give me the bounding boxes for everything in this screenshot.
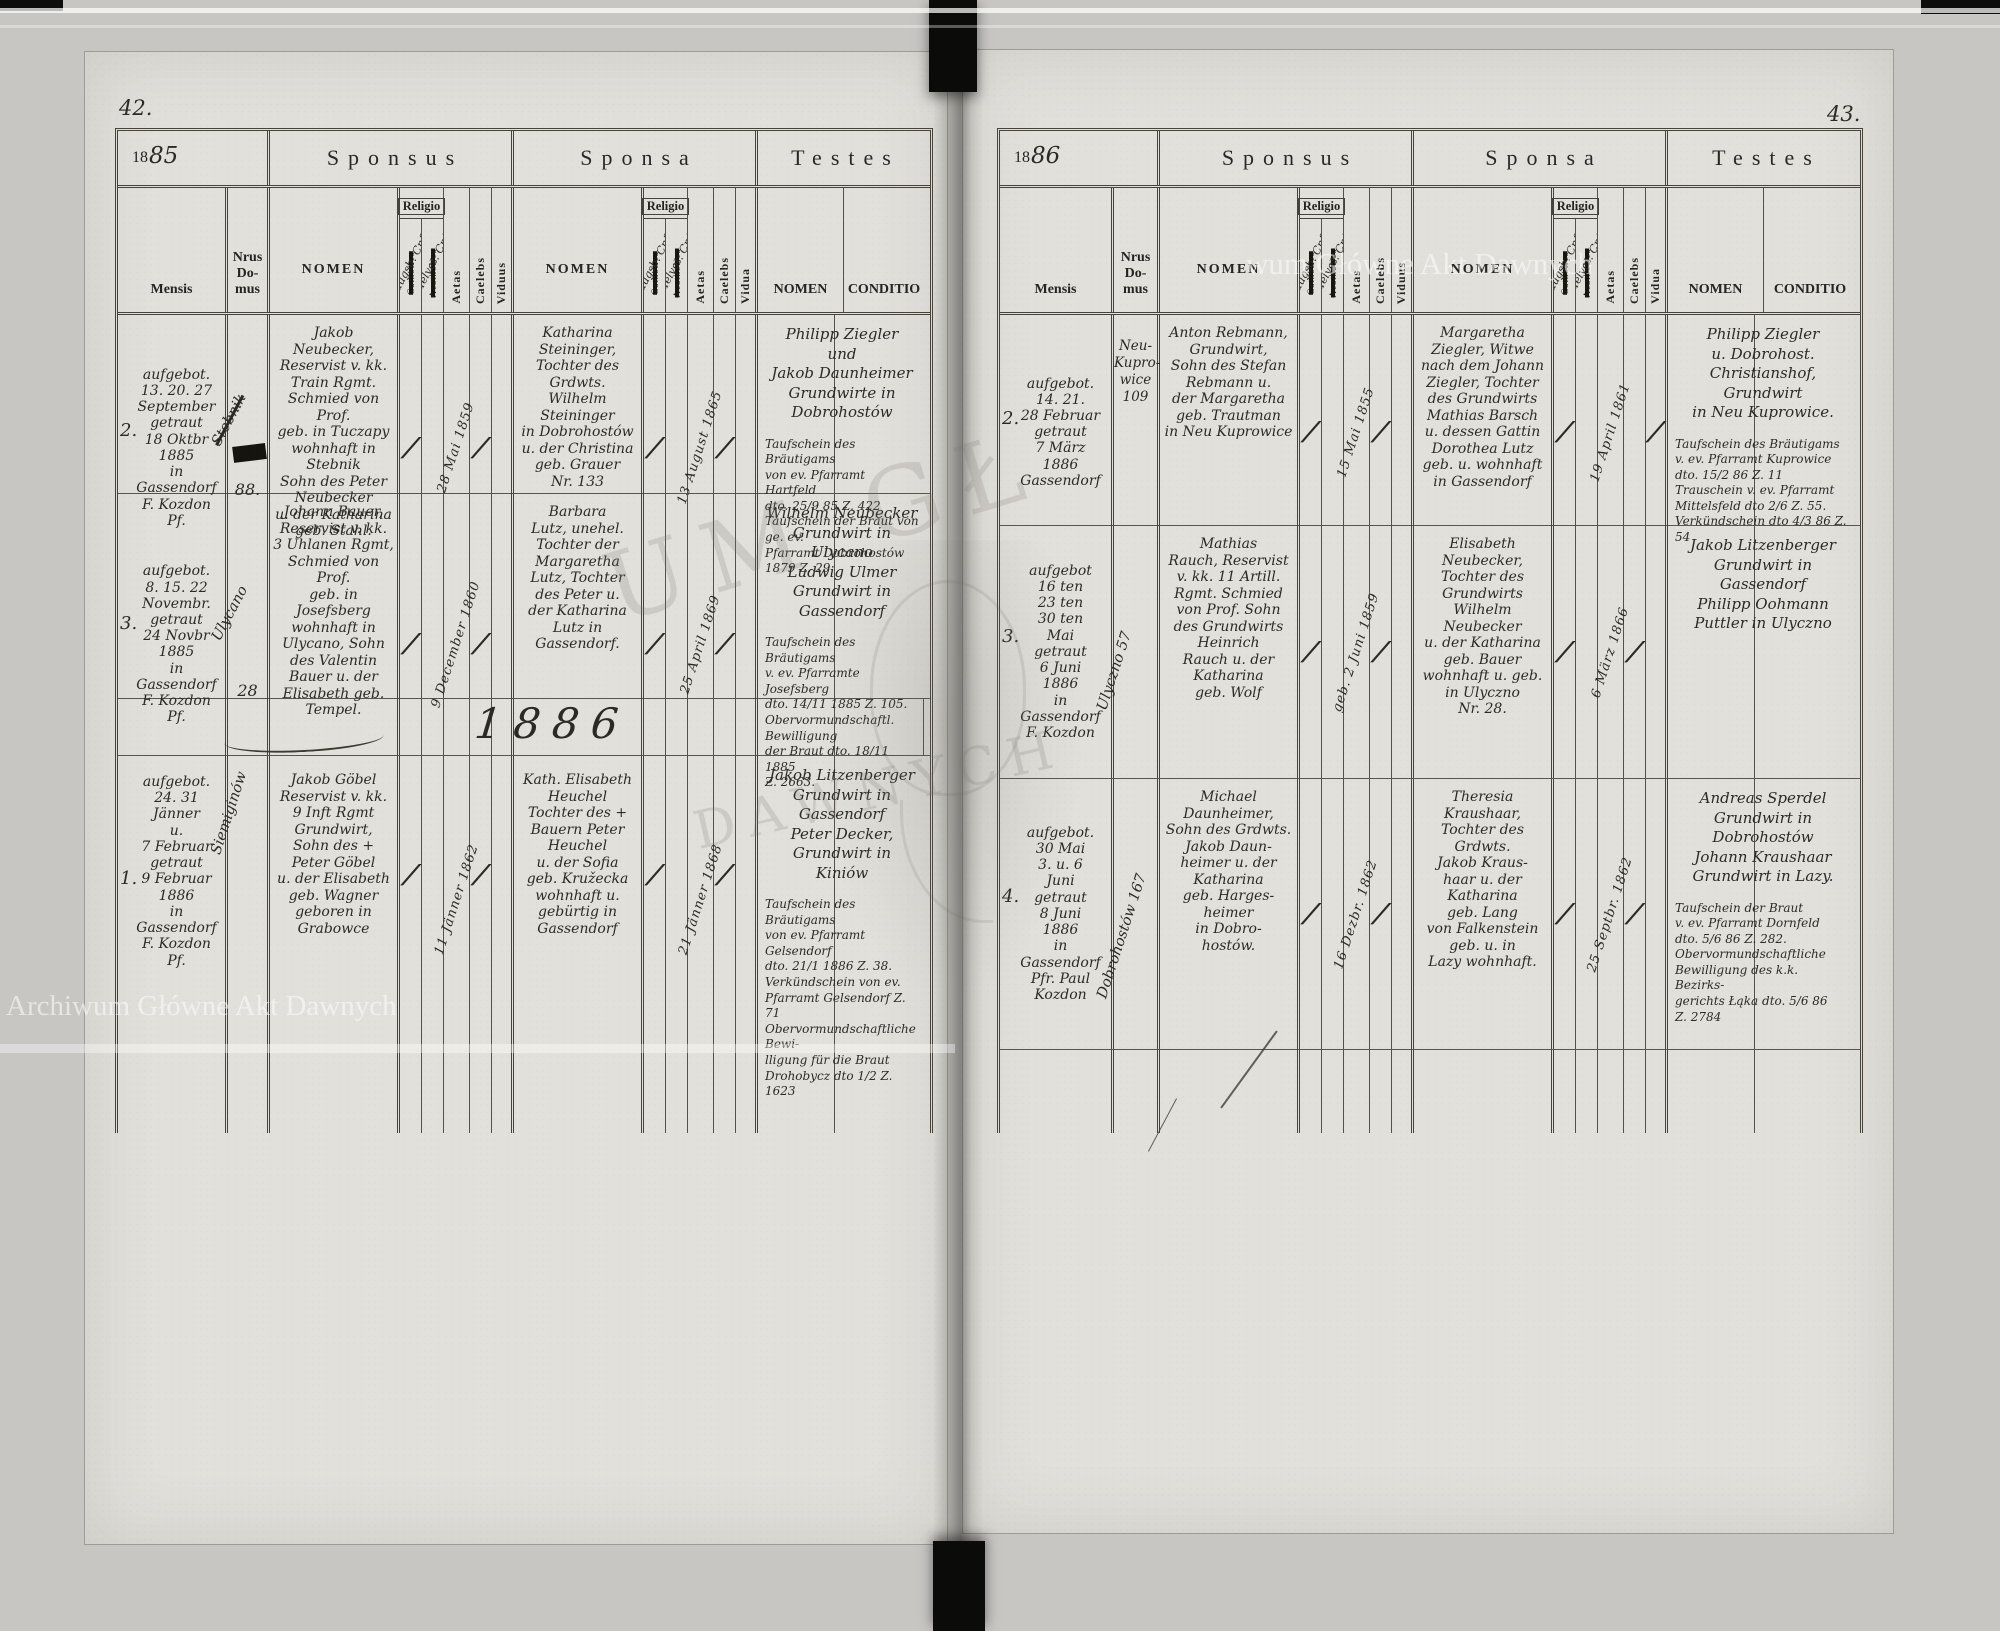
cell-sponsus-nomen: Mathias Rauch, Reservist v. kk. 11 Artil…	[1160, 526, 1300, 778]
entry-number: 3.	[1002, 627, 1019, 648]
col-caelebs-sponsus: Caelebs	[470, 188, 492, 312]
caelebs-mark: /	[714, 629, 734, 659]
cell-sponsa-caelebs: /	[714, 756, 736, 1133]
cell-empty	[736, 699, 758, 755]
page-number-right: 43.	[1827, 102, 1860, 126]
religio-mark: /	[1300, 637, 1320, 667]
cell-empty	[714, 699, 736, 755]
religio-catholica-col: Catholica augsb. Cnf.	[644, 219, 666, 312]
cell-empty	[1322, 1050, 1344, 1133]
col-viduus-sponsus: Viduus	[492, 188, 514, 312]
testes-names: Jakob Litzenberger Grundwirt in Gassendo…	[1675, 536, 1851, 634]
caelebs-mark: /	[1370, 417, 1390, 447]
page-number-left: 42.	[119, 96, 152, 120]
religio-subcolumns: Catholica augsb. Cnf. Acatholica Helvet.…	[400, 218, 443, 312]
religio-mark: /	[1554, 637, 1574, 667]
religio-subcolumns: Catholica augsb. Cnf. Acatholica Helvet.…	[1300, 218, 1343, 312]
religio-mark: /	[644, 860, 664, 890]
cell-mensis: 2. aufgebot. 14. 21. 28 Februar getraut …	[1000, 315, 1114, 550]
cell-sponsa-religio-augsb: /	[1554, 779, 1576, 1049]
cell-sponsa-nomen: Elisabeth Neubecker, Tochter des Grundwi…	[1414, 526, 1554, 778]
section-sponsus: Sponsus	[270, 131, 514, 185]
register-row-entry: 3. aufgebot 16 ten 23 ten 30 ten Mai get…	[1000, 526, 1860, 779]
cell-testes: Jakob Litzenberger Grundwirt in Gassendo…	[1668, 526, 1856, 778]
cell-empty	[1160, 1050, 1300, 1133]
cell-sponsa-nomen: Theresia Kraushaar, Tochter des Grdwts. …	[1414, 779, 1554, 1049]
religio-mark: /	[1554, 899, 1574, 929]
cell-sponsa-caelebs: /	[1624, 526, 1646, 778]
religio-mark: /	[1300, 899, 1320, 929]
testes-names: Jakob Litzenberger Grundwirt in Gassendo…	[765, 766, 919, 883]
testes-notes: Taufschein der Braut v. ev. Pfarramt Dor…	[1675, 901, 1851, 1026]
caelebs-mark: /	[1370, 637, 1390, 667]
caelebs-mark: /	[1370, 899, 1390, 929]
cell-sponsus-religio-helv	[1322, 779, 1344, 1049]
cell-sponsa-aetas: 25 Septbr. 1862	[1598, 779, 1624, 1049]
cell-nrus-domus: Dobrohostów 167	[1114, 779, 1160, 1049]
cell-nrus-domus: Ulyczno 57	[1114, 526, 1160, 778]
col-nomen-testes: NOMEN	[758, 188, 844, 312]
scan-streak	[0, 8, 2000, 13]
caelebs-mark: /	[470, 860, 490, 890]
cell-empty	[1392, 1050, 1414, 1133]
cell-sponsus-viduus	[1392, 315, 1414, 550]
col-vidua-sponsa: Vidua	[1646, 188, 1668, 312]
religio-mark: /	[400, 629, 420, 659]
entry-number: 2.	[1002, 409, 1019, 430]
cell-mensis: 1. aufgebot. 24. 31 Jänner u. 7 Februar …	[118, 756, 228, 1133]
cell-empty	[118, 699, 228, 755]
cell-sponsa-religio-helv	[1576, 315, 1598, 550]
religio-label: Religio	[1552, 198, 1600, 215]
col-conditio-testes: CONDITIO	[1764, 188, 1856, 312]
religio-mark: /	[1300, 417, 1320, 447]
cell-sponsus-caelebs: /	[1370, 779, 1392, 1049]
book-binding-bottom	[933, 1541, 985, 1631]
register-table-right: 18 86 Sponsus Sponsa Testes Mensis Nrus …	[997, 128, 1863, 1133]
religio-label: Religio	[1298, 198, 1346, 215]
religio-subcolumns: Catholica augsb. Cnf. Acatholica Helvet.…	[644, 218, 687, 312]
col-nomen-sponsus: NOMEN	[1160, 188, 1300, 312]
cell-empty	[1000, 1050, 1114, 1133]
cell-sponsa-caelebs: /	[1624, 779, 1646, 1049]
col-religio-sponsa: Religio Catholica augsb. Cnf. Acatholica…	[1554, 188, 1598, 312]
religio-mark: /	[400, 860, 420, 890]
cell-sponsus-religio-augsb: /	[400, 756, 422, 1133]
testes-names: Wilhelm Neubecker Grundwirt in Ulycano L…	[765, 504, 919, 621]
religio-subcolumns: Catholica augsb. Cnf. Acatholica Helvet.…	[1554, 218, 1597, 312]
year-printed: 18	[1014, 149, 1030, 167]
religio-acatholica-col: Acatholica Helvet. Cnf.	[422, 219, 443, 312]
section-sponsa: Sponsa	[1414, 131, 1668, 185]
cell-sponsus-nomen: Anton Rebmann, Grundwirt, Sohn des Stefa…	[1160, 315, 1300, 550]
cell-testes: Andreas Sperdel Grundwirt in Dobrohostów…	[1668, 779, 1856, 1049]
cell-sponsus-viduus	[1392, 779, 1414, 1049]
cell-empty	[1624, 1050, 1646, 1133]
caelebs-mark: /	[1624, 899, 1644, 929]
page-left: 42. 18 85 Sponsus Sponsa Testes Mensis N…	[85, 52, 947, 1544]
col-religio-sponsa: Religio Catholica augsb. Cnf. Acatholica…	[644, 188, 688, 312]
entry-number: 2.	[120, 421, 137, 442]
religio-catholica-col: Catholica augsb. Cnf.	[1554, 219, 1576, 312]
register-table-left: 18 85 Sponsus Sponsa Testes Mensis Nrus …	[115, 128, 933, 1133]
cell-sponsa-aetas: 19 April 1861	[1598, 315, 1624, 550]
cell-sponsa-vidua	[736, 756, 758, 1133]
col-conditio-testes: CONDITIO	[844, 188, 924, 312]
register-row-entry: 3. aufgebot. 8. 15. 22 Novembr. getraut …	[118, 494, 930, 699]
caelebs-mark: /	[470, 433, 490, 463]
cell-sponsus-religio-augsb: /	[1300, 526, 1322, 778]
cell-empty	[1414, 1050, 1554, 1133]
section-sponsus: Sponsus	[1160, 131, 1414, 185]
scan-edge-top-left	[0, 0, 63, 11]
cell-sponsus-viduus	[492, 756, 514, 1133]
cell-sponsa-vidua: /	[1646, 315, 1668, 550]
entry-number: 4.	[1002, 887, 1019, 908]
cell-testes: Jakob Litzenberger Grundwirt in Gassendo…	[758, 756, 924, 1133]
house-number: Neu- Kupro- wice 109	[1114, 338, 1157, 406]
cell-sponsus-religio-helv	[1322, 315, 1344, 550]
religio-mark: /	[400, 433, 420, 463]
year-handwritten: 85	[149, 143, 178, 169]
cell-sponsus-religio-augsb: /	[1300, 315, 1322, 550]
caelebs-mark: /	[714, 860, 734, 890]
cell-mensis: 4. aufgebot. 30 Mai 3. u. 6 Juni getraut…	[1000, 779, 1114, 1049]
section-sponsa: Sponsa	[514, 131, 758, 185]
col-mensis: Mensis	[118, 188, 228, 312]
cell-empty	[1344, 1050, 1370, 1133]
col-aetas-sponsa: Aetas	[688, 188, 714, 312]
year-printed: 18	[132, 149, 148, 167]
cell-testes: Wilhelm Neubecker Grundwirt in Ulycano L…	[758, 494, 924, 795]
col-caelebs-sponsus: Caelebs	[1370, 188, 1392, 312]
register-scan: 42. 18 85 Sponsus Sponsa Testes Mensis N…	[0, 0, 2000, 1631]
testes-notes: Taufschein des Bräutigams von ev. Pfarra…	[765, 897, 919, 1100]
religio-mark: /	[1554, 417, 1574, 447]
religio-acatholica-col: Acatholica Helvet. Cnf.	[1322, 219, 1343, 312]
religio-catholica-col: Catholica augsb. Cnf.	[1300, 219, 1322, 312]
cell-empty	[666, 699, 688, 755]
caelebs-mark: /	[470, 629, 490, 659]
cell-empty	[1576, 1050, 1598, 1133]
col-caelebs-sponsa: Caelebs	[1624, 188, 1646, 312]
cell-sponsus-aetas: geb. 2 Juni 1859	[1344, 526, 1370, 778]
column-header-row: Mensis Nrus Do- mus NOMEN Religio Cathol…	[118, 188, 930, 315]
cell-sponsa-religio-augsb: /	[644, 756, 666, 1133]
cell-empty	[644, 699, 666, 755]
cell-sponsa-religio-helv	[1576, 779, 1598, 1049]
section-testes: Testes	[758, 131, 924, 185]
religio-acatholica-col: Acatholica Helvet. Cnf.	[666, 219, 687, 312]
mensis-text: aufgebot 16 ten 23 ten 30 ten Mai getrau…	[1012, 563, 1109, 742]
cell-sponsus-viduus	[1392, 526, 1414, 778]
scan-streak	[0, 25, 2000, 28]
mensis-text: aufgebot. 24. 31 Jänner u. 7 Februar get…	[130, 774, 223, 969]
col-religio-sponsus: Religio Catholica augsb. Cnf. Acatholica…	[1300, 188, 1344, 312]
caelebs-mark: /	[714, 433, 734, 463]
book-binding-top	[929, 0, 977, 92]
religio-label: Religio	[398, 198, 446, 215]
cell-sponsa-aetas: 6 März 1866	[1598, 526, 1624, 778]
col-religio-sponsus: Religio Catholica augsb. Cnf. Acatholica…	[400, 188, 444, 312]
col-mensis: Mensis	[1000, 188, 1114, 312]
cell-nrus-domus: Siemiginów	[228, 756, 270, 1133]
year-handwritten: 86	[1031, 143, 1060, 169]
col-caelebs-sponsa: Caelebs	[714, 188, 736, 312]
testes-divider	[1754, 1050, 1755, 1133]
house-number: 28	[228, 681, 267, 700]
cell-testes: Philipp Ziegler u. Dobrohost. Christians…	[1668, 315, 1856, 550]
vidua-mark: /	[1645, 417, 1665, 447]
cell-sponsus-religio-augsb: /	[1300, 779, 1322, 1049]
cell-sponsus-caelebs: /	[1370, 315, 1392, 550]
cell-sponsa-nomen: Margaretha Ziegler, Witwe nach dem Johan…	[1414, 315, 1554, 550]
cell-empty	[1300, 1050, 1322, 1133]
cell-sponsa-vidua	[1646, 526, 1668, 778]
section-testes: Testes	[1668, 131, 1856, 185]
testes-names: Andreas Sperdel Grundwirt in Dobrohostów…	[1675, 789, 1851, 887]
cell-sponsus-religio-helv	[1322, 526, 1344, 778]
cell-empty	[1554, 1050, 1576, 1133]
register-row-entry: 4. aufgebot. 30 Mai 3. u. 6 Juni getraut…	[1000, 779, 1860, 1050]
col-nomen-sponsa: NOMEN	[1414, 188, 1554, 312]
testes-names: Philipp Ziegler u. Dobrohost. Christians…	[1675, 325, 1851, 423]
column-header-row: Mensis Nrus Do- mus NOMEN Religio Cathol…	[1000, 188, 1860, 315]
col-nrus-domus: Nrus Do- mus	[228, 188, 270, 312]
cell-empty	[1114, 1050, 1160, 1133]
empty-ruled-row	[1000, 1050, 1860, 1133]
cell-empty	[688, 699, 714, 755]
cell-sponsus-caelebs: /	[470, 756, 492, 1133]
cell-year: 18 86	[1000, 131, 1160, 185]
mensis-text: aufgebot. 14. 21. 28 Februar getraut 7 M…	[1012, 376, 1109, 490]
col-nomen-sponsus: NOMEN	[270, 188, 400, 312]
cell-sponsa-religio-helv	[1576, 526, 1598, 778]
section-header-row: 18 86 Sponsus Sponsa Testes	[1000, 131, 1860, 188]
testes-notes: Taufschein des Bräutigams v. ev. Pfarram…	[1675, 437, 1851, 546]
religio-mark: /	[644, 433, 664, 463]
cell-empty	[1668, 1050, 1856, 1133]
col-aetas-sponsa: Aetas	[1598, 188, 1624, 312]
cell-sponsus-aetas: 11 Jänner 1862	[444, 756, 470, 1133]
religio-label: Religio	[642, 198, 690, 215]
cell-mensis: 3. aufgebot 16 ten 23 ten 30 ten Mai get…	[1000, 526, 1114, 778]
col-nomen-sponsa: NOMEN	[514, 188, 644, 312]
cell-sponsa-caelebs	[1624, 315, 1646, 550]
page-right: 43. 18 86 Sponsus Sponsa Testes Mensis N…	[963, 50, 1893, 1533]
cell-empty	[422, 699, 444, 755]
section-header-row: 18 85 Sponsus Sponsa Testes	[118, 131, 930, 188]
cell-sponsus-aetas: 16 Dezbr. 1862	[1344, 779, 1370, 1049]
cell-empty	[444, 699, 470, 755]
religio-mark: /	[644, 629, 664, 659]
cell-sponsa-aetas: 21 Jänner 1868	[688, 756, 714, 1133]
cell-empty	[1598, 1050, 1624, 1133]
cell-empty	[1646, 1050, 1668, 1133]
col-aetas-sponsus: Aetas	[444, 188, 470, 312]
mensis-text: aufgebot. 30 Mai 3. u. 6 Juni getraut 8 …	[1012, 825, 1109, 1004]
cell-empty	[400, 699, 422, 755]
register-row-entry: 1. aufgebot. 24. 31 Jänner u. 7 Februar …	[118, 756, 930, 1133]
cell-empty	[1370, 1050, 1392, 1133]
col-nrus-domus: Nrus Do- mus	[1114, 188, 1160, 312]
col-aetas-sponsus: Aetas	[1344, 188, 1370, 312]
cell-nrus-domus: Neu- Kupro- wice 109	[1114, 315, 1160, 550]
col-nomen-testes: NOMEN	[1668, 188, 1764, 312]
house-number-blotted: 111	[232, 443, 266, 463]
religio-acatholica-col: Acatholica Helvet. Cnf.	[1576, 219, 1597, 312]
scan-edge-top-right	[1921, 0, 2000, 14]
cell-sponsa-vidua	[1646, 779, 1668, 1049]
cell-sponsa-religio-augsb: /	[1554, 526, 1576, 778]
year-band-1886: 1886	[473, 699, 633, 748]
col-viduus-sponsus: Viduus	[1392, 188, 1414, 312]
register-row-entry: 2. aufgebot. 13. 20. 27 September getrau…	[118, 315, 930, 494]
entry-number: 1.	[120, 869, 137, 890]
cell-sponsus-aetas: 15 Mai 1855	[1344, 315, 1370, 550]
col-vidua-sponsa: Vidua	[736, 188, 758, 312]
cell-sponsus-nomen: Jakob Göbel Reservist v. kk. 9 Inft Rgmt…	[270, 756, 400, 1133]
religio-catholica-col: Catholica augsb. Cnf.	[400, 219, 422, 312]
entry-number: 3.	[120, 614, 137, 635]
register-row-entry: 2. aufgebot. 14. 21. 28 Februar getraut …	[1000, 315, 1860, 526]
testes-names: Philipp Ziegler und Jakob Daunheimer Gru…	[765, 325, 919, 423]
caelebs-mark: /	[1624, 637, 1644, 667]
cell-year: 18 85	[118, 131, 270, 185]
cell-sponsus-caelebs: /	[1370, 526, 1392, 778]
cell-sponsa-religio-augsb: /	[1554, 315, 1576, 550]
cell-sponsus-nomen: Michael Daunheimer, Sohn des Grdwts. Jak…	[1160, 779, 1300, 1049]
cell-sponsa-nomen: Kath. Elisabeth Heuchel Tochter des + Ba…	[514, 756, 644, 1133]
